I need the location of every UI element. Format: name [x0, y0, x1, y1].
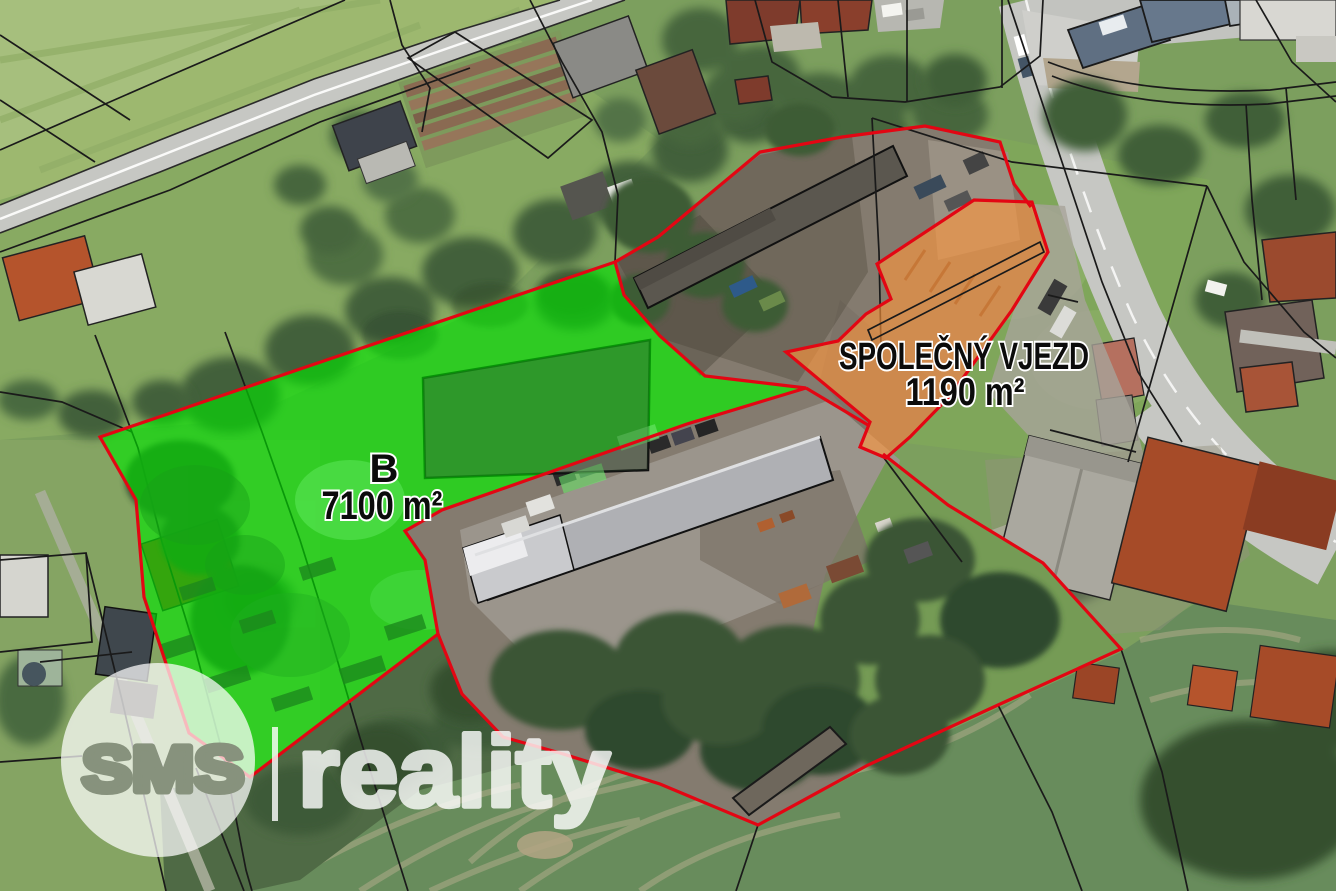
svg-text:reality: reality [298, 716, 610, 828]
svg-text:1190 m²: 1190 m² [906, 371, 1025, 414]
svg-text:SMS: SMS [82, 733, 244, 805]
svg-text:7100 m²: 7100 m² [322, 484, 443, 528]
